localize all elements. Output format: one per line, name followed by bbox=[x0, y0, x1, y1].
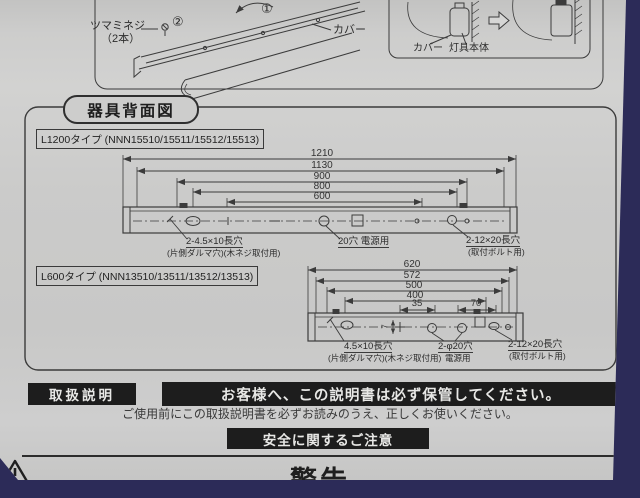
cover-label: カバー bbox=[333, 24, 366, 36]
l1200-dim-600: 600 bbox=[292, 191, 352, 202]
l1200-left-hole-label: 2-4.5×10長穴 bbox=[186, 237, 243, 248]
l600-center-hole-label: 2-φ20穴 bbox=[438, 342, 473, 353]
l600-dim-620: 620 bbox=[382, 259, 442, 270]
l600-left-hole-sublabel: (片側ダルマ穴)(木ネジ取付用) bbox=[328, 354, 441, 363]
warning-triangle-icon bbox=[0, 459, 30, 485]
warning-box-top-border bbox=[22, 455, 618, 457]
l1200-right-hole-sublabel: (取付ボルト用) bbox=[468, 248, 525, 257]
read-before-use-text: ご使用前にこの取扱説明書を必ずお読みのうえ、正しくお使いください。 bbox=[0, 408, 640, 421]
l600-type-label: L600タイプ (NNN13510/13511/13512/13513) bbox=[36, 266, 258, 286]
handling-section-label: 取扱説明 bbox=[28, 383, 136, 405]
l600-dim-35: 35 bbox=[405, 299, 429, 309]
inset-body-label: 灯具本体 bbox=[449, 43, 489, 54]
l600-dim-70: 70 bbox=[464, 299, 488, 309]
thumb-screw-count: （2本） bbox=[101, 33, 140, 45]
thumb-screw-label: ツマミネジ bbox=[90, 20, 145, 32]
safety-notes-title-bar: 安全に関するご注意 bbox=[227, 428, 429, 449]
l600-left-hole-label: 4.5×10長穴 bbox=[344, 342, 392, 353]
section-title-rear-view: 器具背面図 bbox=[63, 95, 199, 124]
l1200-dim-1210: 1210 bbox=[292, 148, 352, 159]
l600-dim-7: 7 bbox=[381, 324, 390, 328]
l1200-dim-1130: 1130 bbox=[292, 160, 352, 171]
l600-right-hole-sublabel: (取付ボルト用) bbox=[509, 352, 566, 361]
warning-heading: 警告 bbox=[0, 459, 640, 498]
inset-cover-label: カバー bbox=[413, 43, 443, 54]
l1200-center-hole-label: 20穴 電源用 bbox=[338, 237, 389, 248]
l1200-right-hole-label: 2-12×20長穴 bbox=[466, 236, 520, 247]
manual-page: ツマミネジ （2本） ② ① カバー カバー 灯具本体 器具背面図 L1200タ… bbox=[0, 0, 640, 480]
step-2-badge: ② bbox=[172, 15, 184, 29]
l1200-type-label: L1200タイプ (NNN15510/15511/15512/15513) bbox=[36, 129, 264, 149]
keep-manual-notice-bar: お客様へ、この説明書は必ず保管してください。 bbox=[162, 382, 620, 406]
warning-text: 警告 bbox=[290, 459, 350, 498]
l600-center-hole-sublabel: 電源用 bbox=[445, 354, 471, 363]
l1200-left-hole-sublabel: (片側ダルマ穴)(木ネジ取付用) bbox=[167, 249, 280, 258]
step-1-badge: ① bbox=[261, 2, 273, 16]
l600-right-hole-label: 2-12×20長穴 bbox=[508, 340, 562, 351]
cover-removal-drawing bbox=[134, 2, 365, 99]
